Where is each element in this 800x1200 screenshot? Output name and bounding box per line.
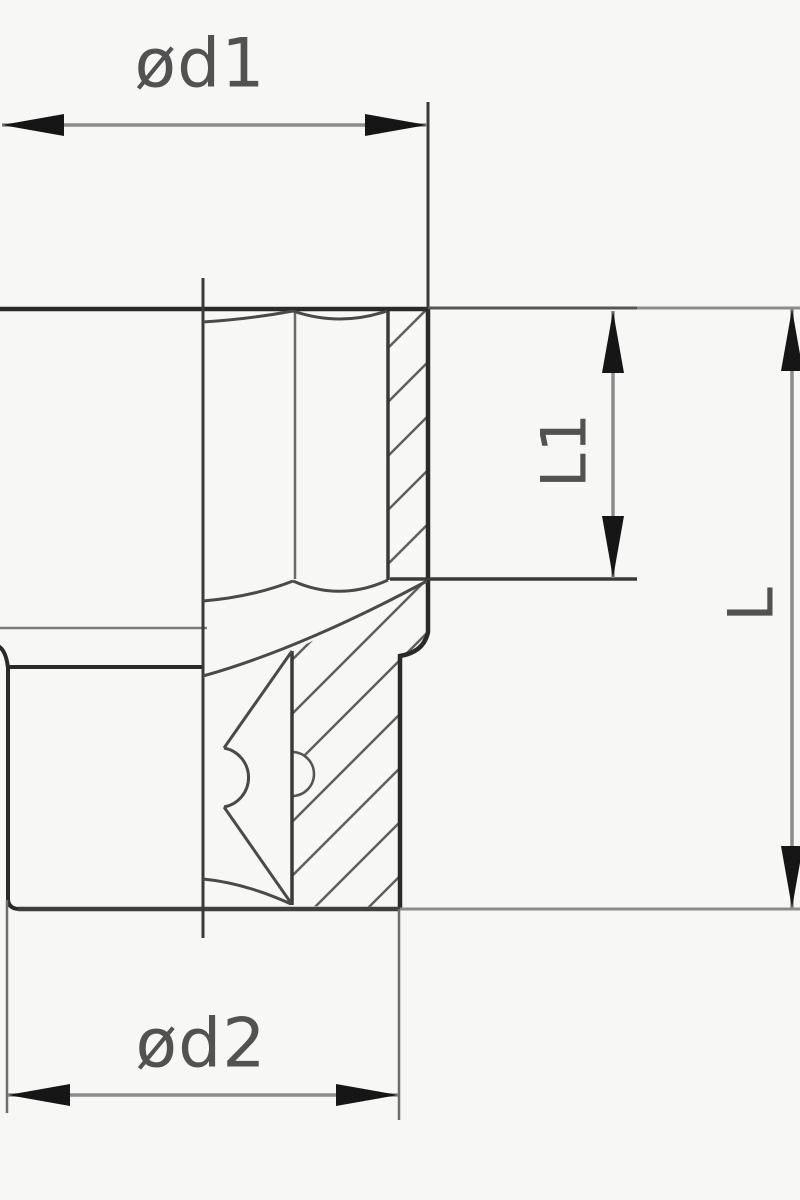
body-left-lower-edge (0, 646, 18, 909)
socket-section-drawing (0, 0, 800, 1200)
square-hole-chamfer-lower (224, 807, 291, 903)
technical-drawing-canvas: ød1 L1 L ød2 (0, 0, 800, 1200)
dim-l1-arrow-bottom (602, 516, 624, 578)
ball-detent-profile (224, 748, 249, 807)
dim-label-l1: L1 (528, 412, 601, 488)
dim-label-l: L (715, 586, 788, 622)
dim-label-d2: ød2 (135, 1005, 266, 1084)
hex-bottom-wave (203, 580, 388, 601)
dim-label-d1: ød1 (134, 25, 265, 104)
dim-d2-arrow-left (8, 1084, 70, 1106)
dim-d2-arrow-right (336, 1084, 398, 1106)
dim-l-arrow-top (781, 309, 800, 371)
dim-d1-arrow-right (365, 114, 427, 136)
dim-d1-arrow-left (2, 114, 64, 136)
body-right-wall (400, 308, 428, 909)
dim-l1-arrow-top (602, 311, 624, 373)
dim-l-arrow-bottom (781, 846, 800, 908)
